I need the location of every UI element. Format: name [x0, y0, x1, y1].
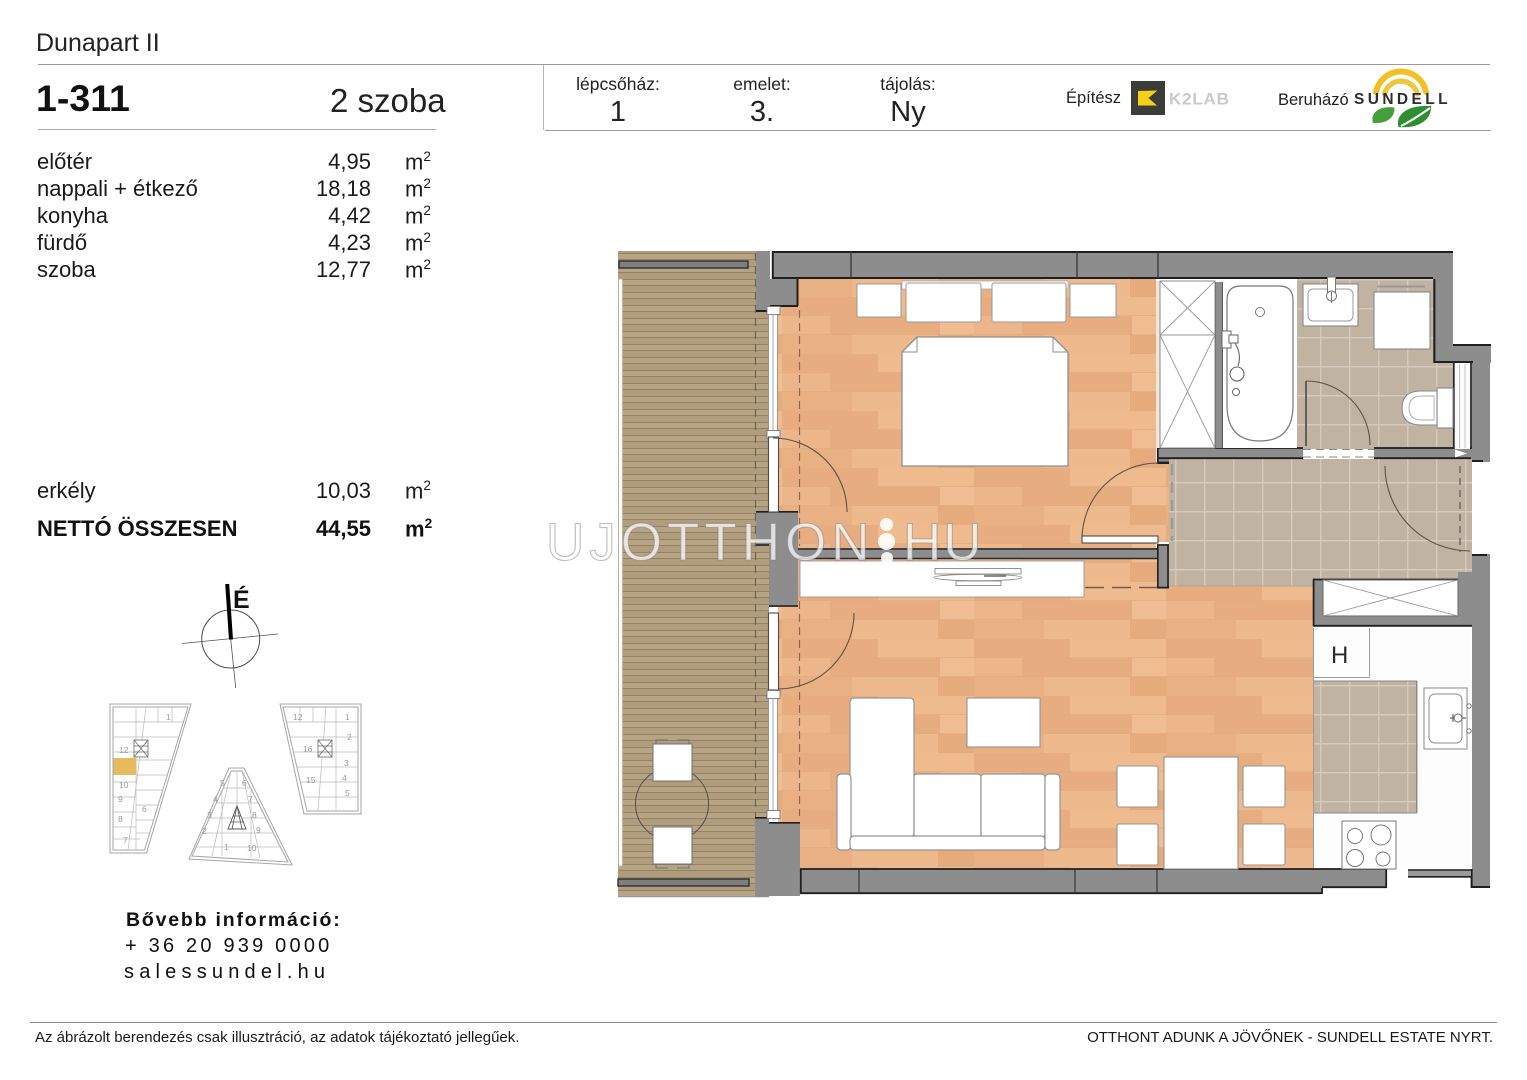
svg-text:12: 12 [119, 745, 129, 755]
svg-text:2: 2 [202, 826, 207, 836]
svg-text:8: 8 [118, 814, 123, 824]
svg-text:K2LAB: K2LAB [1169, 90, 1230, 109]
svg-text:7: 7 [123, 835, 128, 845]
svg-text:1: 1 [166, 712, 171, 722]
svg-text:9: 9 [118, 794, 123, 804]
svg-text:3: 3 [207, 810, 212, 820]
svg-text:2: 2 [347, 732, 352, 742]
svg-text:15: 15 [306, 775, 316, 785]
svg-text:5: 5 [220, 778, 225, 788]
svg-text:10: 10 [247, 843, 257, 853]
svg-text:10: 10 [119, 780, 129, 790]
svg-text:8: 8 [252, 810, 257, 820]
svg-text:1: 1 [345, 712, 350, 722]
svg-text:É: É [233, 585, 250, 614]
svg-text:5: 5 [345, 788, 350, 798]
svg-text:4: 4 [213, 794, 218, 804]
svg-text:SUNDELL: SUNDELL [1354, 91, 1451, 108]
svg-text:16: 16 [303, 744, 313, 754]
svg-text:6: 6 [242, 778, 247, 788]
svg-text:1: 1 [224, 842, 229, 852]
svg-text:12: 12 [293, 712, 303, 722]
svg-text:7: 7 [248, 794, 253, 804]
svg-text:9: 9 [256, 825, 261, 835]
svg-text:4: 4 [342, 773, 347, 783]
svg-text:3: 3 [344, 758, 349, 768]
svg-text:H: H [1331, 642, 1348, 669]
svg-text:6: 6 [142, 804, 147, 814]
